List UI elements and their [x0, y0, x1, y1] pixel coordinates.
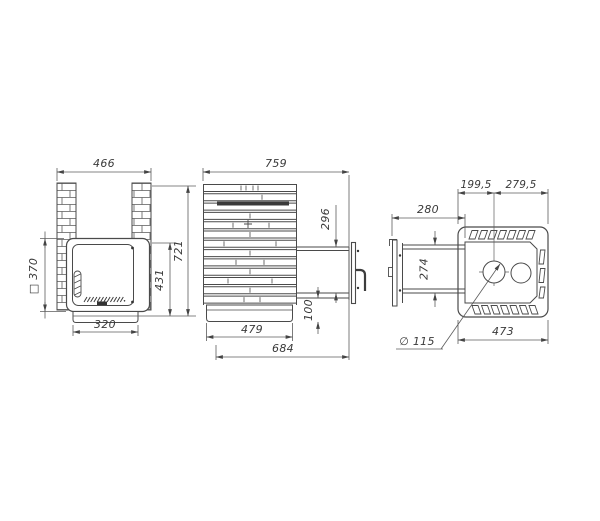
dim-label-base-width: 320 [94, 318, 116, 331]
dim-label-door-size: □ 370 [27, 258, 40, 294]
top-door-bolt-bottom [399, 289, 401, 291]
firebox-door [73, 245, 134, 306]
dim-label-depth: 759 [265, 157, 287, 170]
side-top-bar [217, 202, 289, 206]
front-view [57, 183, 151, 323]
top-view [389, 193, 549, 317]
dim-label-door-height: 431 [153, 269, 166, 291]
side-door-bolt-bottom [357, 287, 359, 289]
top-door-plate [393, 240, 398, 306]
flue-opening-secondary [511, 263, 531, 283]
top-tunnel [402, 245, 465, 293]
technical-drawing-canvas: 466 320 □ 370 431 721 [0, 0, 600, 521]
dim-label-body-width: 473 [492, 325, 514, 338]
dim-label-overall-height: 721 [172, 240, 185, 262]
top-door-handle [389, 268, 393, 277]
vent-latch [97, 302, 107, 306]
dim-label-tunnel-length: 280 [417, 203, 439, 216]
door-hinge-top [131, 247, 134, 250]
dim-label-portal-offset: 100 [302, 299, 315, 321]
dim-label-portal-height: 296 [319, 208, 332, 230]
side-view [204, 185, 366, 322]
dim-label-base-depth: 479 [241, 323, 263, 336]
dim-label-front-width: 466 [93, 157, 115, 170]
ext-lines-flue [458, 189, 548, 224]
dim-label-tunnel-width: 274 [418, 258, 431, 280]
side-door-bolt-top [357, 250, 359, 252]
dim-label-flue-diameter: ∅ 115 [399, 335, 435, 348]
dim-label-flue-right: 279,5 [505, 179, 536, 191]
dim-label-flue-left: 199,5 [460, 179, 491, 191]
stove-dimension-drawing: 466 320 □ 370 431 721 [0, 0, 600, 521]
dim-label-depth-with-door: 684 [272, 342, 294, 355]
top-door-bolt-top [399, 254, 401, 256]
side-tunnel [297, 247, 350, 298]
side-base [207, 305, 293, 322]
side-door [352, 243, 356, 304]
vent-dot [124, 300, 126, 302]
door-hinge-bottom [131, 301, 134, 304]
